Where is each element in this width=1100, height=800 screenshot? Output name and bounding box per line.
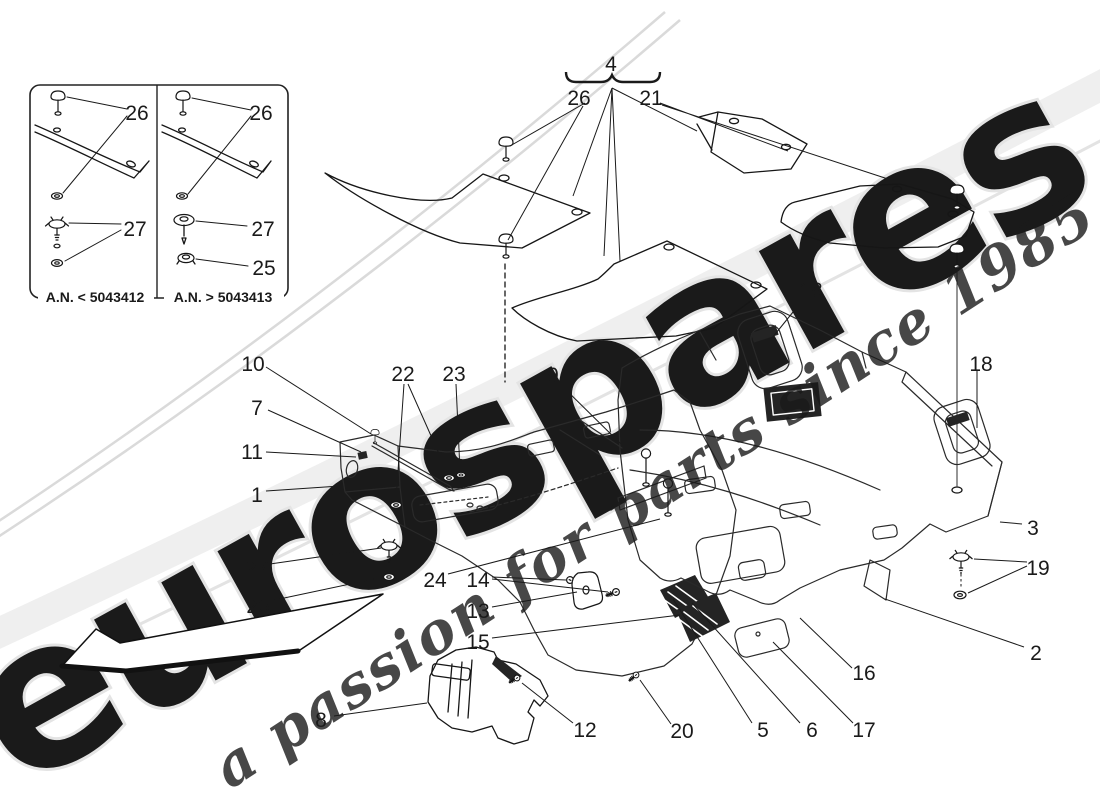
callout-3: 3 (1027, 517, 1039, 540)
callout-1: 1 (251, 484, 263, 507)
callout-6: 6 (806, 719, 818, 742)
callout-10: 10 (241, 353, 264, 376)
callout-25: 25 (246, 595, 269, 618)
callout-5: 5 (757, 719, 769, 742)
inset-label-27-left: 27 (123, 218, 146, 241)
callout-19: 19 (1026, 557, 1049, 580)
inset-box: A.N. < 5043412 A.N. > 5043413 26 27 26 2… (30, 85, 288, 306)
callout-7: 7 (251, 397, 263, 420)
inset-label-27-right: 27 (251, 218, 274, 241)
inset-caption-right: A.N. > 5043413 (174, 289, 273, 305)
callout-2: 2 (1030, 642, 1042, 665)
callout-11: 11 (241, 441, 263, 464)
callout-17: 17 (852, 719, 875, 742)
inset-label-25-right: 25 (252, 257, 275, 280)
callout-4: 4 (605, 53, 617, 76)
callout-18-center: 18 (799, 279, 822, 302)
callout-9: 9 (547, 364, 559, 387)
callout-26-top: 26 (567, 87, 590, 110)
inset-label-26-right: 26 (249, 102, 272, 125)
callout-22: 22 (391, 363, 414, 386)
callout-16: 16 (852, 662, 875, 685)
inset-caption-left: A.N. < 5043412 (46, 289, 145, 305)
callout-18-right: 18 (969, 353, 992, 376)
callout-12: 12 (573, 719, 596, 742)
callout-27: 27 (245, 557, 268, 580)
callout-21: 21 (639, 87, 662, 110)
callout-23: 23 (442, 363, 465, 386)
parts-diagram-page: eurospares (0, 0, 1100, 800)
exploded-parts-diagram: eurospares (0, 0, 1100, 800)
callout-20: 20 (670, 720, 693, 743)
handle-bezel-right (931, 396, 993, 467)
inset-label-26-left: 26 (125, 102, 148, 125)
